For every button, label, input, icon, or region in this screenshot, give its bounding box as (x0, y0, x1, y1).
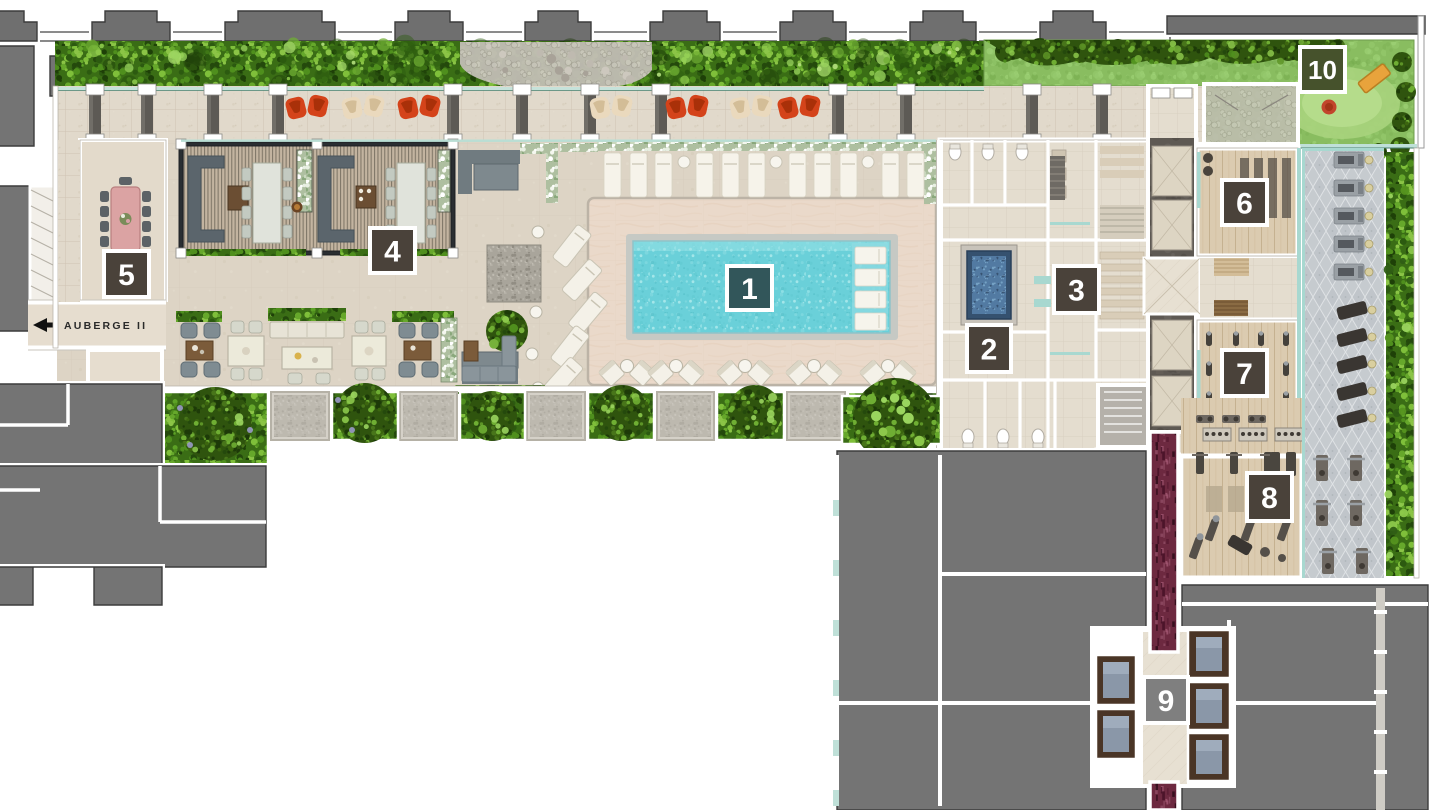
svg-text:8: 8 (1261, 482, 1278, 515)
svg-text:7: 7 (1236, 358, 1253, 391)
svg-text:10: 10 (1308, 55, 1337, 85)
svg-text:1: 1 (741, 273, 758, 306)
svg-text:6: 6 (1236, 187, 1253, 220)
svg-text:4: 4 (384, 235, 401, 268)
svg-text:2: 2 (981, 333, 998, 366)
svg-text:3: 3 (1068, 274, 1085, 307)
svg-text:AUBERGE II: AUBERGE II (64, 320, 147, 332)
svg-text:9: 9 (1158, 685, 1175, 718)
svg-text:5: 5 (118, 259, 135, 292)
